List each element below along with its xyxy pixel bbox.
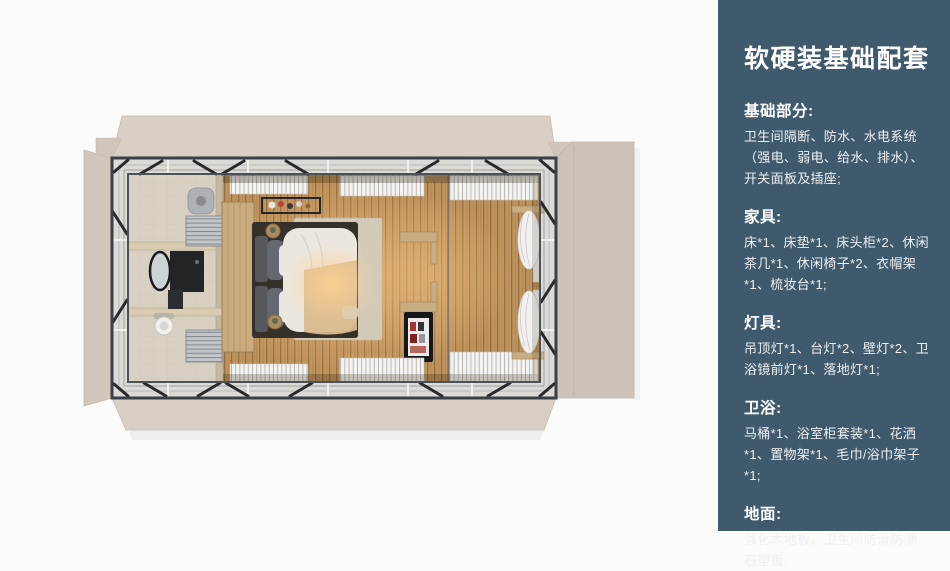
sidebar-title: 软硬装基础配套: [744, 44, 930, 75]
section-body: 强化木地板、卫生间防滑防潮石塑板;: [744, 529, 930, 571]
floorplan-svg: [0, 0, 718, 534]
headboard-wall: [222, 202, 254, 352]
section-body: 卫生间隔断、防水、水电系统（强电、弱电、给水、排水）、开关面板及插座;: [744, 126, 930, 189]
section-body: 床*1、床垫*1、床头柜*2、休闲茶几*1、休闲椅子*2、衣帽架*1、梳妆台*1…: [744, 232, 930, 295]
spec-section-flooring: 地面: 强化木地板、卫生间防滑防潮石塑板;: [744, 502, 930, 571]
section-heading: 卫浴:: [744, 396, 930, 418]
display-cabinet: [404, 312, 433, 362]
spec-section-lighting: 灯具: 吊顶灯*1、台灯*2、壁灯*2、卫浴镜前灯*1、落地灯*1;: [744, 311, 930, 380]
towel-radiator: [186, 216, 222, 246]
towel-radiator: [186, 330, 222, 362]
section-heading: 灯具:: [744, 311, 930, 333]
toilet: [154, 313, 174, 335]
floorplan-panel: [0, 0, 718, 534]
spec-sidebar: 软硬装基础配套 基础部分: 卫生间隔断、防水、水电系统（强电、弱电、给水、排水）…: [718, 0, 950, 531]
bathroom: [128, 174, 223, 382]
spec-section-basics: 基础部分: 卫生间隔断、防水、水电系统（强电、弱电、给水、排水）、开关面板及插座…: [744, 99, 930, 189]
spec-section-furniture: 家具: 床*1、床垫*1、床头柜*2、休闲茶几*1、休闲椅子*2、衣帽架*1、梳…: [744, 205, 930, 295]
section-heading: 地面:: [744, 502, 930, 524]
shower: [188, 188, 214, 214]
section-heading: 家具:: [744, 205, 930, 227]
section-heading: 基础部分:: [744, 99, 930, 121]
bathroom-partition: [128, 308, 223, 316]
section-body: 马桶*1、浴室柜套装*1、花洒*1、置物架*1、毛巾/浴巾架子*1;: [744, 423, 930, 486]
lamp-glow: [286, 244, 378, 324]
spec-section-sanitary: 卫浴: 马桶*1、浴室柜套装*1、花洒*1、置物架*1、毛巾/浴巾架子*1;: [744, 396, 930, 486]
section-body: 吊顶灯*1、台灯*2、壁灯*2、卫浴镜前灯*1、落地灯*1;: [744, 338, 930, 380]
